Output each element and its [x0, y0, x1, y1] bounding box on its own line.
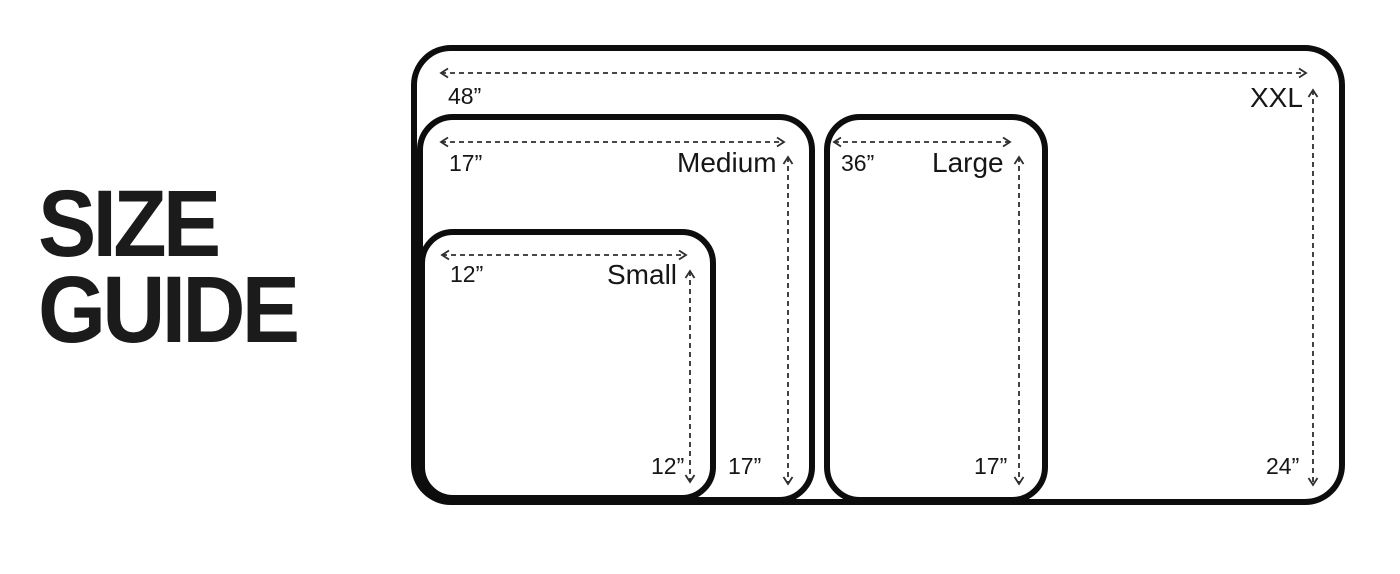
- medium-name-label: Medium: [677, 147, 777, 179]
- xxl-height-label: 24”: [1266, 453, 1299, 480]
- small-width-label: 12”: [450, 261, 483, 288]
- large-width-label: 36”: [841, 150, 874, 177]
- medium-height-label: 17”: [728, 453, 761, 480]
- xxl-name-label: XXL: [1250, 82, 1303, 114]
- size-guide-diagram: SIZE GUIDE 48” 17” 36” 12”: [0, 0, 1400, 574]
- xxl-width-label: 48”: [448, 83, 481, 110]
- page-title: SIZE GUIDE: [38, 182, 296, 353]
- title-line-2: GUIDE: [38, 268, 296, 354]
- large-name-label: Large: [932, 147, 1004, 179]
- large-height-label: 17”: [974, 453, 1007, 480]
- small-height-label: 12”: [651, 453, 684, 480]
- title-line-1: SIZE: [38, 182, 296, 268]
- small-name-label: Small: [607, 259, 677, 291]
- medium-width-label: 17”: [449, 150, 482, 177]
